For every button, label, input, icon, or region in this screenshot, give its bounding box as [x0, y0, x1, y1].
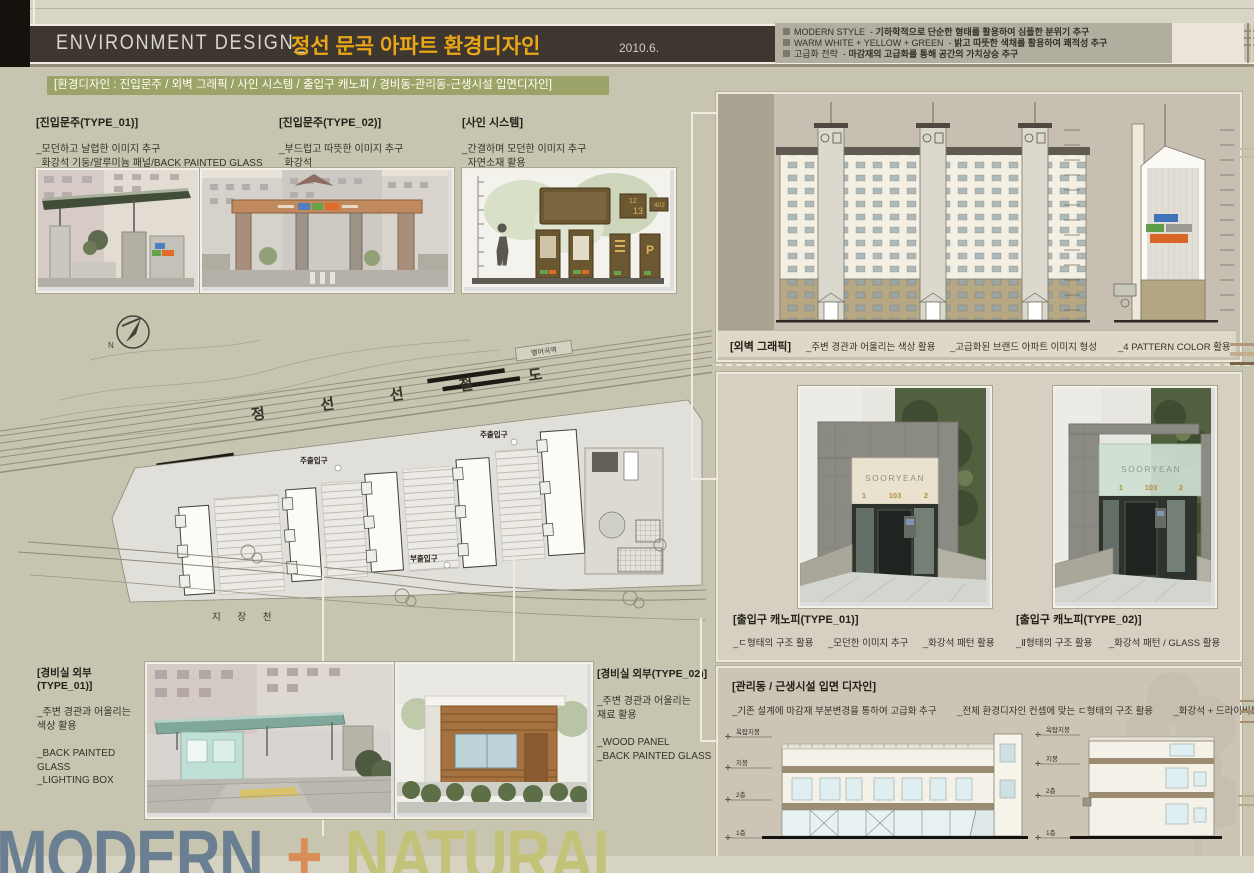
side-elevation: [1114, 104, 1205, 320]
svg-text:2: 2: [924, 491, 928, 500]
svg-text:✛: ✛: [1035, 760, 1041, 768]
footer-word-natural: NATURAL: [345, 815, 629, 873]
sign-system-art: 12 13 402 P: [464, 170, 670, 287]
front-elevation: [776, 102, 1090, 320]
guard-type01-photo: [145, 662, 397, 819]
facility-blocks: [585, 448, 663, 574]
footer-typography: MODERN + NATURAL: [0, 820, 629, 873]
svg-text:103: 103: [1145, 483, 1158, 492]
svg-text:지붕: 지붕: [1046, 754, 1058, 763]
concept-panel: MODERN STYLE - 기하학적으로 단순한 형태를 활용하여 심플한 분…: [775, 23, 1172, 63]
connector-line: [691, 112, 693, 480]
section-title: [진입문주(TYPE_02)]: [279, 114, 449, 130]
footer-plus: +: [286, 815, 321, 873]
svg-text:12: 12: [629, 198, 637, 205]
svg-text:103: 103: [889, 491, 902, 500]
section-entry-type02: [진입문주(TYPE_02)] _부드럽고 따뜻한 이미지 추구 _화강석: [279, 114, 449, 170]
board-date: 2010.6.: [619, 41, 659, 55]
edge-stripes: [1240, 700, 1254, 723]
section-title: [진입문주(TYPE_01)]: [36, 114, 271, 130]
svg-text:옥탑지붕: 옥탑지붕: [736, 727, 760, 736]
guard-type01-art: [147, 664, 391, 813]
apartment-elevation-drawing: [718, 94, 1236, 330]
svg-text:1: 1: [1119, 483, 1123, 492]
dashed-divider: [716, 364, 1250, 366]
entry-type01-photo-art: [38, 170, 194, 287]
svg-text:✛: ✛: [725, 796, 731, 804]
guard-type02-photo: [395, 662, 593, 819]
edge-stripes: [1240, 148, 1254, 158]
svg-text:13: 13: [633, 206, 643, 216]
board-title-ko: 정선 문곡 아파트 환경디자인: [291, 30, 540, 60]
header-cream-block: [1172, 23, 1244, 63]
edge-stripes: [1230, 343, 1254, 365]
top-strip-line: [0, 8, 1254, 9]
svg-text:옥탑지붕: 옥탑지붕: [1046, 725, 1070, 734]
header-edge-line: [1247, 23, 1249, 63]
guard-type02-art: [397, 664, 587, 813]
svg-text:402: 402: [654, 202, 665, 209]
svg-text:✛: ✛: [725, 834, 731, 842]
connector-line: [700, 618, 702, 742]
bullet-square-icon: [783, 28, 790, 35]
header-underline-gray: [0, 64, 1254, 67]
admin-building-elevation: [762, 734, 1028, 839]
svg-text:1층: 1층: [736, 828, 746, 837]
level-markers-right: 옥탑지붕✛ 지붕✛ 2층✛ 1층✛: [1035, 725, 1080, 842]
board-title-en: ENVIRONMENT DESIGN_: [56, 31, 306, 55]
header-left-block: [0, 0, 30, 67]
header-edge-line2: [1251, 23, 1253, 63]
section-entry-type01: [진입문주(TYPE_01)] _모던하고 날렵한 이미지 추구 _화강석 기둥…: [36, 114, 271, 170]
connector-line: [700, 740, 718, 742]
svg-text:✛: ✛: [1035, 792, 1041, 800]
bullet-square-icon: [783, 39, 790, 46]
bullet-square-icon: [783, 50, 790, 57]
wall-graphic-caption-bar: [외벽 그래픽] _주변 경관과 어울리는 색상 활용 _고급화된 브랜드 아파…: [718, 330, 1236, 357]
svg-text:P: P: [646, 243, 654, 257]
concept-bullet: MODERN STYLE - 기하학적으로 단순한 형태를 활용하여 심플한 분…: [783, 27, 1172, 38]
svg-text:N: N: [108, 341, 114, 350]
svg-text:✛: ✛: [1035, 834, 1041, 842]
canopy-type01-photo: SOORYEAN 1 103 2: [798, 386, 992, 608]
canopy-type01-art: SOORYEAN 1 103 2: [800, 388, 986, 602]
svg-text:1층: 1층: [1046, 828, 1056, 837]
canopy-type01-caption: [출입구 캐노피(TYPE_01)] _ㄷ형태의 구조 활용 _모던한 이미지 …: [733, 611, 1008, 651]
edge-stripes: [1238, 795, 1254, 806]
level-markers-left: 옥탑지붕✛ 지붕✛ 2층✛ 1층✛: [725, 727, 772, 842]
facility-building-elevation: [1070, 737, 1222, 839]
sign-system-image: 12 13 402 P: [462, 168, 676, 293]
section-guard-type02: [경비실 외부(TYPE_02)] _주변 경관과 어울리는 재료 활용 _WO…: [597, 666, 712, 763]
concept-bullet: 고급화 전략 - 마감재의 고급화를 통해 공간의 가치상승 추구: [783, 49, 1172, 60]
concept-bullet: WARM WHITE + YELLOW + GREEN - 밝고 따뜻한 색채를…: [783, 38, 1172, 49]
floor-level-ticks: [1220, 130, 1234, 310]
svg-text:2층: 2층: [736, 790, 746, 799]
svg-text:주출입구: 주출입구: [300, 455, 328, 465]
svg-text:2층: 2층: [1046, 786, 1056, 795]
svg-text:2: 2: [1179, 483, 1183, 492]
building-name: SOORYEAN: [865, 473, 925, 483]
design-board: ENVIRONMENT DESIGN_ 정선 문곡 아파트 환경디자인 2010…: [0, 0, 1254, 873]
section-sign-system: [사인 시스템] _간결하며 모던한 이미지 추구 _자연소재 활용: [462, 114, 662, 170]
svg-text:1: 1: [862, 491, 866, 500]
top-strip: [0, 0, 1254, 24]
subtitle-bar: [환경디자인 : 진입문주 / 외벽 그래픽 / 사인 시스템 / 출입구 캐노…: [47, 76, 609, 95]
connector-line: [691, 112, 718, 114]
svg-text:✛: ✛: [725, 733, 731, 741]
canopy-type02-photo: SOORYEAN 1 103 2: [1053, 386, 1217, 608]
station-marker: 별어곡역: [515, 340, 572, 361]
entry-type02-photo: [200, 168, 454, 293]
north-arrow-icon: N: [108, 316, 149, 350]
canopy-type02-art: SOORYEAN 1 103 2: [1055, 388, 1211, 602]
svg-text:부출입구: 부출입구: [410, 553, 438, 563]
top-strip-notch: [33, 0, 35, 24]
subtitle-text: [환경디자인 : 진입문주 / 외벽 그래픽 / 사인 시스템 / 출입구 캐노…: [54, 79, 552, 91]
stream-label: 지 장 천: [212, 612, 279, 623]
canopy-type02-caption: [출입구 캐노피(TYPE_02)] _Ⅱ형태의 구조 활용 _화강석 패턴 /…: [1016, 611, 1241, 651]
footer-word-modern: MODERN: [0, 815, 262, 873]
svg-text:주출입구: 주출입구: [480, 429, 508, 439]
svg-text:✛: ✛: [725, 764, 731, 772]
site-plan-drawing: N 정 선 선 철 도 별어곡역: [0, 290, 712, 675]
svg-text:지붕: 지붕: [736, 758, 748, 767]
admin-caption: [관리동 / 근생시설 입면 디자인] _기존 설계에 마감재 부분변경을 통하…: [732, 678, 1232, 719]
connector-line: [691, 478, 718, 480]
entry-type01-photo: [36, 168, 200, 293]
section-guard-type01: [경비실 외부(TYPE_01)] _주변 경관과 어울리는 색상 활용 _BA…: [37, 665, 145, 788]
section-title: [사인 시스템]: [462, 114, 662, 130]
svg-text:✛: ✛: [1035, 731, 1041, 739]
building-name: SOORYEAN: [1121, 464, 1181, 474]
entry-type02-photo-art: [202, 170, 448, 287]
